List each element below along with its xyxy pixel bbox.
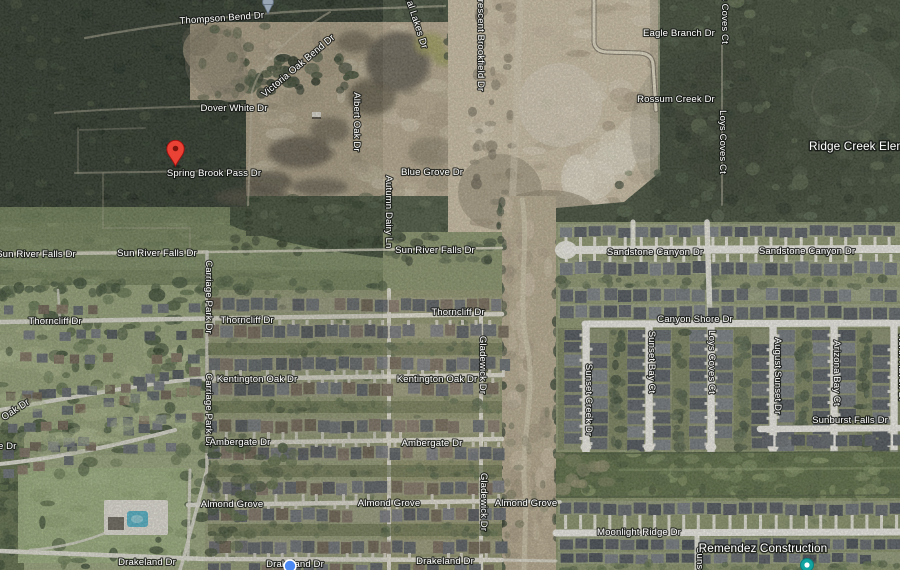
svg-text:Almond Grove: Almond Grove <box>201 499 264 510</box>
svg-text:Almond Grove: Almond Grove <box>495 498 558 509</box>
svg-text:Kentington Oak Dr: Kentington Oak Dr <box>397 374 478 385</box>
svg-text:Sunburst Falls Dr: Sunburst Falls Dr <box>812 415 889 426</box>
svg-text:Spring Brook Pass Dr: Spring Brook Pass Dr <box>167 168 262 179</box>
svg-text:Albert Oak Dr: Albert Oak Dr <box>351 92 362 152</box>
svg-text:Moonlight Ridge Dr: Moonlight Ridge Dr <box>597 527 682 538</box>
svg-text:Ambergate Dr: Ambergate Dr <box>210 437 272 448</box>
svg-text:Crescent Brookfield Dr: Crescent Brookfield Dr <box>475 0 486 92</box>
svg-text:Blue Grove Dr: Blue Grove Dr <box>401 167 464 178</box>
svg-text:Sunset Bay Ct: Sunset Bay Ct <box>646 331 657 394</box>
svg-text:Sandstone Canyon Dr: Sandstone Canyon Dr <box>759 246 856 257</box>
svg-text:Gladewick Dr: Gladewick Dr <box>477 336 488 395</box>
svg-text:Loys Coves Ct: Loys Coves Ct <box>706 330 717 394</box>
svg-text:Thorncliff Dr: Thorncliff Dr <box>220 315 274 326</box>
svg-text:Sun River Falls Dr: Sun River Falls Dr <box>117 248 197 259</box>
svg-text:Eagle Branch Dr: Eagle Branch Dr <box>643 28 716 39</box>
svg-text:Remendez Construction: Remendez Construction <box>699 541 828 555</box>
svg-text:Ambergate Dr: Ambergate Dr <box>402 438 464 449</box>
svg-text:Drakeland Dr: Drakeland Dr <box>416 556 474 567</box>
svg-text:North Haven Dr: North Haven Dr <box>896 334 900 403</box>
svg-text:Dover White Dr: Dover White Dr <box>201 103 269 114</box>
svg-text:Arizona Bay Ct: Arizona Bay Ct <box>831 340 842 406</box>
svg-text:Gladewick Dr: Gladewick Dr <box>478 473 489 532</box>
svg-text:Loys Coves Ct: Loys Coves Ct <box>717 110 728 174</box>
svg-text:August Sunset Dr: August Sunset Dr <box>772 338 783 415</box>
svg-text:Carriage Park Dr: Carriage Park Dr <box>203 260 214 334</box>
svg-text:Thorncliff Dr: Thorncliff Dr <box>28 316 82 327</box>
svg-text:Autumn Dairy Ln: Autumn Dairy Ln <box>383 176 394 249</box>
svg-text:Loys Coves Ct: Loys Coves Ct <box>719 0 730 44</box>
svg-text:Sun River Falls Dr: Sun River Falls Dr <box>395 245 475 256</box>
svg-text:Sun River Falls Dr: Sun River Falls Dr <box>0 249 77 260</box>
svg-text:Ambergate Dr: Ambergate Dr <box>0 441 17 452</box>
svg-text:Thorncliff Dr: Thorncliff Dr <box>431 307 485 318</box>
svg-text:Ridge Creek Eleme: Ridge Creek Eleme <box>809 139 900 153</box>
svg-text:Almond Grove: Almond Grove <box>358 498 421 509</box>
svg-text:Canyon Shore Dr: Canyon Shore Dr <box>657 314 733 325</box>
svg-text:Drakeland Dr: Drakeland Dr <box>118 557 176 568</box>
svg-text:Rossum Creek Dr: Rossum Creek Dr <box>637 94 715 105</box>
svg-text:Sandstone Canyon Dr: Sandstone Canyon Dr <box>607 247 704 258</box>
svg-text:Kentington Oak Dr: Kentington Oak Dr <box>217 374 298 385</box>
svg-text:Sunset Creek Dr: Sunset Creek Dr <box>583 364 594 437</box>
